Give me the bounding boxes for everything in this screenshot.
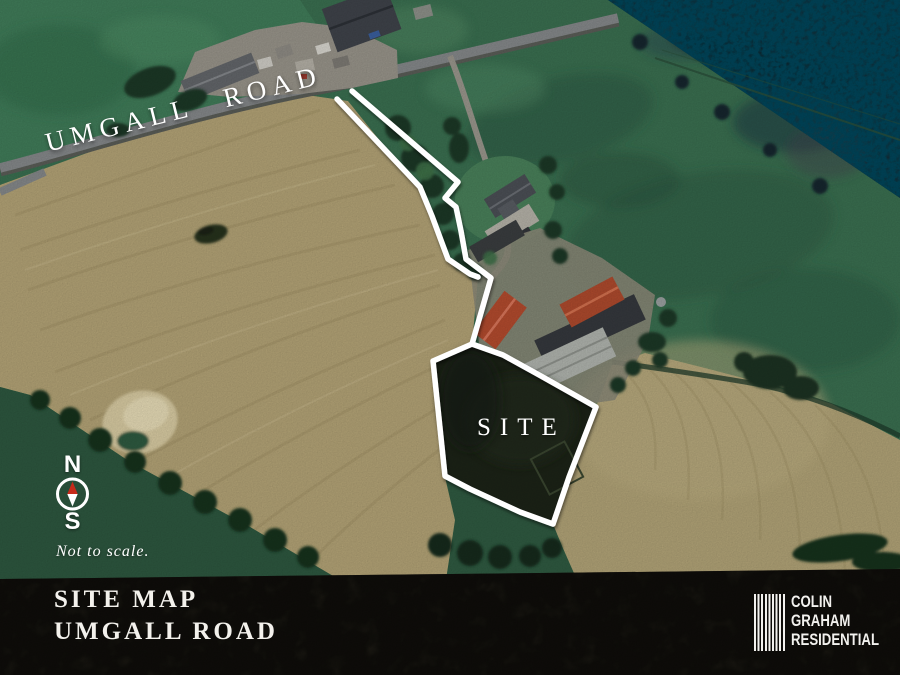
- footer-title-site-map: SITE MAP: [54, 586, 198, 614]
- aerial-map: [0, 0, 900, 675]
- site-map-page: UMGALL ROAD SITE N S Not to scale. SITE …: [0, 0, 900, 675]
- footer-title-umgall-road: UMGALL ROAD: [54, 618, 278, 646]
- logo-line3: RESIDENTIAL: [791, 631, 879, 650]
- logo-line2: GRAHAM: [791, 612, 879, 631]
- scale-note: Not to scale.: [56, 543, 149, 561]
- logo-line1: COLIN: [791, 593, 879, 612]
- compass-south-label: S: [58, 508, 87, 536]
- logo-bars-icon: [754, 594, 786, 651]
- colin-graham-residential-logo: COLIN GRAHAM RESIDENTIAL: [754, 593, 900, 651]
- compass-north-label: N: [58, 451, 87, 479]
- photo-grain: [0, 0, 900, 580]
- logo-text: COLIN GRAHAM RESIDENTIAL: [791, 593, 879, 650]
- map-site-label: SITE: [477, 414, 566, 442]
